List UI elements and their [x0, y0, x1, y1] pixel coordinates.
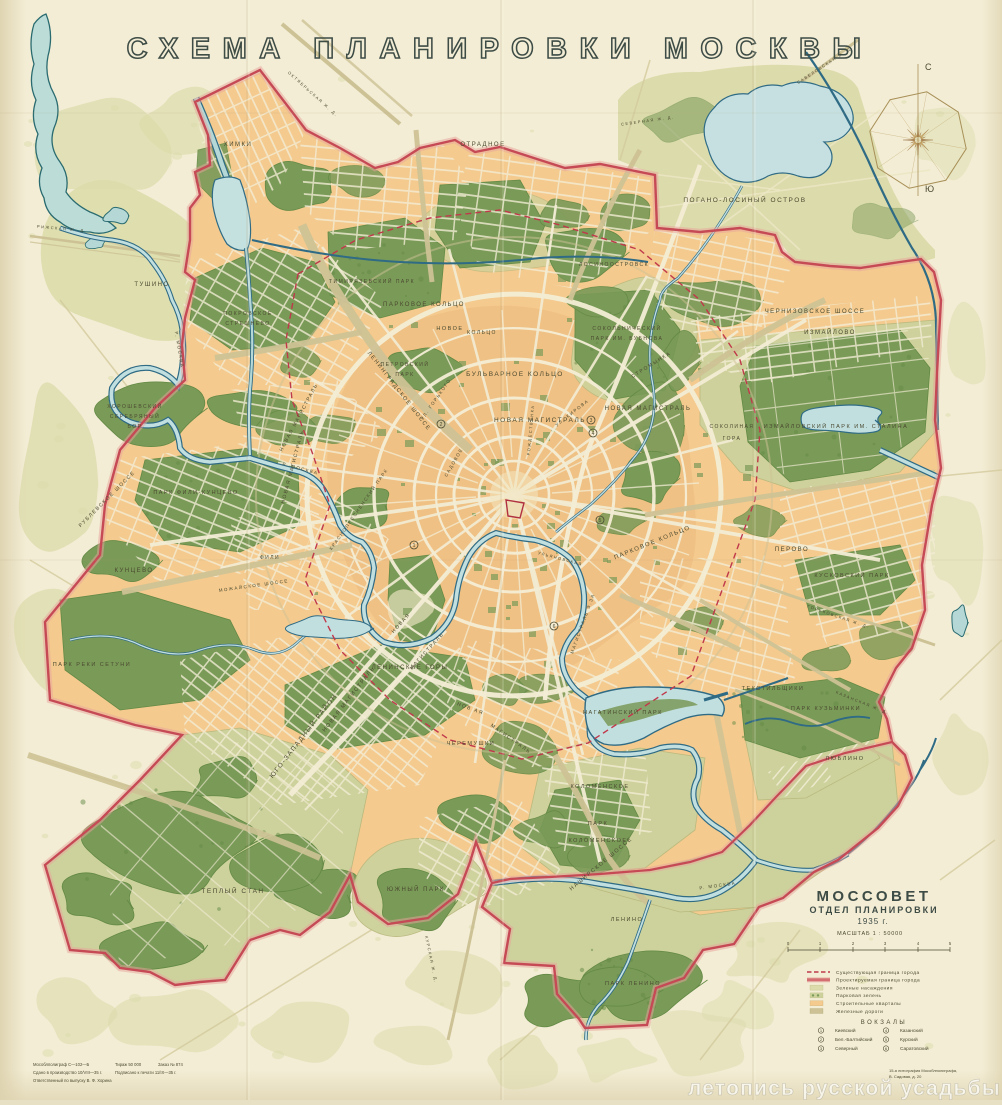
svg-text:МАСШТАБ 1 : 50000: МАСШТАБ 1 : 50000 [837, 931, 903, 937]
svg-text:БОР: БОР [128, 424, 143, 430]
svg-text:Подписано к печати 11/IX—35 г.: Подписано к печати 11/IX—35 г. [115, 1070, 176, 1075]
svg-text:ЛЕНИНО: ЛЕНИНО [611, 917, 643, 923]
svg-text:Парковая зелень: Парковая зелень [836, 993, 881, 999]
svg-text:Бел.-Балтийский: Бел.-Балтийский [835, 1036, 873, 1043]
svg-text:СТРЕШНЕВО: СТРЕШНЕВО [225, 321, 270, 327]
svg-text:ПАРК РЕКИ СЕТУНИ: ПАРК РЕКИ СЕТУНИ [53, 662, 131, 668]
svg-text:КОЛОМЕНСКОЕ: КОЛОМЕНСКОЕ [568, 838, 627, 844]
svg-text:ПАРК: ПАРК [395, 372, 414, 378]
svg-text:ОТДЕЛ ПЛАНИРОВКИ: ОТДЕЛ ПЛАНИРОВКИ [809, 905, 938, 915]
svg-text:ТЕПЛЫЙ СТАН: ТЕПЛЫЙ СТАН [201, 886, 264, 895]
svg-text:ЧЕРНИЗОВСКОЕ ШОССЕ: ЧЕРНИЗОВСКОЕ ШОССЕ [765, 309, 866, 315]
svg-text:СОКОЛИНАЯ: СОКОЛИНАЯ [709, 424, 754, 430]
svg-text:ПАРК ИМ. БУБНОВА: ПАРК ИМ. БУБНОВА [591, 336, 664, 342]
svg-text:КУНЦЕВО: КУНЦЕВО [114, 568, 153, 574]
svg-text:НОВАЯ МАГИСТРАЛЬ: НОВАЯ МАГИСТРАЛЬ [605, 406, 692, 412]
svg-text:2: 2 [440, 422, 443, 428]
svg-text:1935 г.: 1935 г. [857, 917, 888, 926]
svg-text:ХОРОШЕВСКИЙ: ХОРОШЕВСКИЙ [107, 402, 162, 410]
svg-text:ЛЮБЛИНО: ЛЮБЛИНО [825, 756, 864, 762]
svg-text:Существующая граница города: Существующая граница города [836, 970, 920, 976]
svg-text:Ответственный по выпуску В. Ф.: Ответственный по выпуску В. Ф. Хорина [33, 1078, 112, 1083]
svg-text:ХИМКИ: ХИМКИ [224, 142, 253, 148]
svg-text:Киевский: Киевский [835, 1027, 856, 1034]
svg-text:Тираж 50 000: Тираж 50 000 [115, 1062, 142, 1067]
svg-text:4: 4 [592, 431, 595, 437]
svg-text:ПАРКОВОЕ КОЛЬЦО: ПАРКОВОЕ КОЛЬЦО [383, 302, 465, 308]
svg-text:ВОКЗАЛЫ: ВОКЗАЛЫ [861, 1020, 907, 1026]
svg-text:3: 3 [590, 418, 593, 424]
svg-text:ПАРК: ПАРК [588, 821, 609, 827]
svg-text:БУЛЬВАРНОЕ КОЛЬЦО: БУЛЬВАРНОЕ КОЛЬЦО [466, 371, 564, 378]
svg-text:Зеленые насаждения: Зеленые насаждения [836, 985, 893, 991]
svg-text:ЮЖНЫЙ ПАРК: ЮЖНЫЙ ПАРК [387, 885, 445, 893]
svg-text:ОТРАДНОЕ: ОТРАДНОЕ [460, 142, 505, 148]
svg-text:ПЕТРОВСКИЙ: ПЕТРОВСКИЙ [381, 360, 430, 368]
svg-text:ПОГАНО-ЛОСИНЫЙ ОСТРОВ: ПОГАНО-ЛОСИНЫЙ ОСТРОВ [683, 195, 806, 204]
svg-text:СЕРЕБРЯНЫЙ: СЕРЕБРЯНЫЙ [110, 412, 160, 420]
svg-text:СХЕМА ПЛАНИРОВКИ МОСКВЫ: СХЕМА ПЛАНИРОВКИ МОСКВЫ [127, 33, 874, 65]
svg-text:СОКОЛЬНИЧЕСКИЙ: СОКОЛЬНИЧЕСКИЙ [592, 324, 661, 332]
svg-text:Сдано в производство 10/VIII—3: Сдано в производство 10/VIII—35 г. [33, 1070, 102, 1075]
svg-text:ИЗМАЙЛОВО: ИЗМАЙЛОВО [804, 328, 856, 336]
svg-text:Курский: Курский [900, 1036, 918, 1043]
svg-text:Проектируемая граница города: Проектируемая граница города [836, 978, 920, 984]
svg-text:ПАРК КУЗЬМИНКИ: ПАРК КУЗЬМИНКИ [791, 706, 861, 712]
svg-text:ИЗМАЙЛОВСКИЙ ПАРК ИМ. СТАЛИНА: ИЗМАЙЛОВСКИЙ ПАРК ИМ. СТАЛИНА [764, 422, 909, 430]
svg-text:НОВОЕ: НОВОЕ [436, 326, 463, 332]
svg-text:ПЕРОВО: ПЕРОВО [775, 547, 809, 553]
svg-text:15-я литография Мособлполиграф: 15-я литография Мособлполиграфа, [889, 1068, 957, 1073]
svg-text:ЛОСИНООСТРОВСК: ЛОСИНООСТРОВСК [579, 262, 649, 268]
svg-text:НАГАТИНСКИЙ ПАРК: НАГАТИНСКИЙ ПАРК [583, 708, 663, 716]
svg-text:Саратовский: Саратовский [900, 1045, 929, 1052]
svg-text:КУСКОВСКИЙ ПАРК: КУСКОВСКИЙ ПАРК [814, 571, 889, 579]
svg-text:1: 1 [413, 543, 416, 549]
svg-text:ТИМИРЯЗЕВСКИЙ ПАРК: ТИМИРЯЗЕВСКИЙ ПАРК [329, 277, 415, 285]
svg-text:5: 5 [599, 518, 602, 524]
svg-text:ТУШИНО: ТУШИНО [134, 282, 169, 288]
svg-text:Северный: Северный [835, 1045, 858, 1052]
svg-text:Заказ № 874: Заказ № 874 [158, 1062, 183, 1067]
svg-text:С: С [925, 62, 932, 72]
svg-text:ТЕКСТИЛЬЩИКИ: ТЕКСТИЛЬЩИКИ [742, 686, 805, 692]
svg-text:Строительные кварталы: Строительные кварталы [836, 1001, 901, 1007]
svg-text:Мособлполиграф С—102—Б: Мособлполиграф С—102—Б [33, 1062, 89, 1067]
svg-text:Ю: Ю [925, 184, 934, 194]
svg-text:ПАРК ЛЕНИНО: ПАРК ЛЕНИНО [605, 981, 661, 987]
svg-text:ЧЕРЕМУШКИ: ЧЕРЕМУШКИ [447, 741, 495, 747]
svg-text:НОВАЯ МАГИСТРАЛЬ: НОВАЯ МАГИСТРАЛЬ [494, 417, 586, 424]
svg-text:Казанский: Казанский [900, 1027, 923, 1034]
svg-text:летопись русской усадьбы: летопись русской усадьбы [688, 1077, 1001, 1100]
svg-text:КОЛЬЦО: КОЛЬЦО [467, 330, 497, 336]
svg-text:ПАРК ФИЛИ-КУНЦЕВО: ПАРК ФИЛИ-КУНЦЕВО [153, 490, 238, 496]
svg-text:КОЛОМЕНСКОЕ: КОЛОМЕНСКОЕ [570, 784, 629, 790]
svg-text:ГОРА: ГОРА [723, 436, 742, 442]
svg-text:Железные дороги: Железные дороги [836, 1009, 883, 1015]
svg-text:ПОКРОВСКОЕ: ПОКРОВСКОЕ [223, 311, 272, 317]
svg-text:6: 6 [553, 624, 556, 630]
svg-text:МОССОВЕТ: МОССОВЕТ [816, 888, 931, 905]
